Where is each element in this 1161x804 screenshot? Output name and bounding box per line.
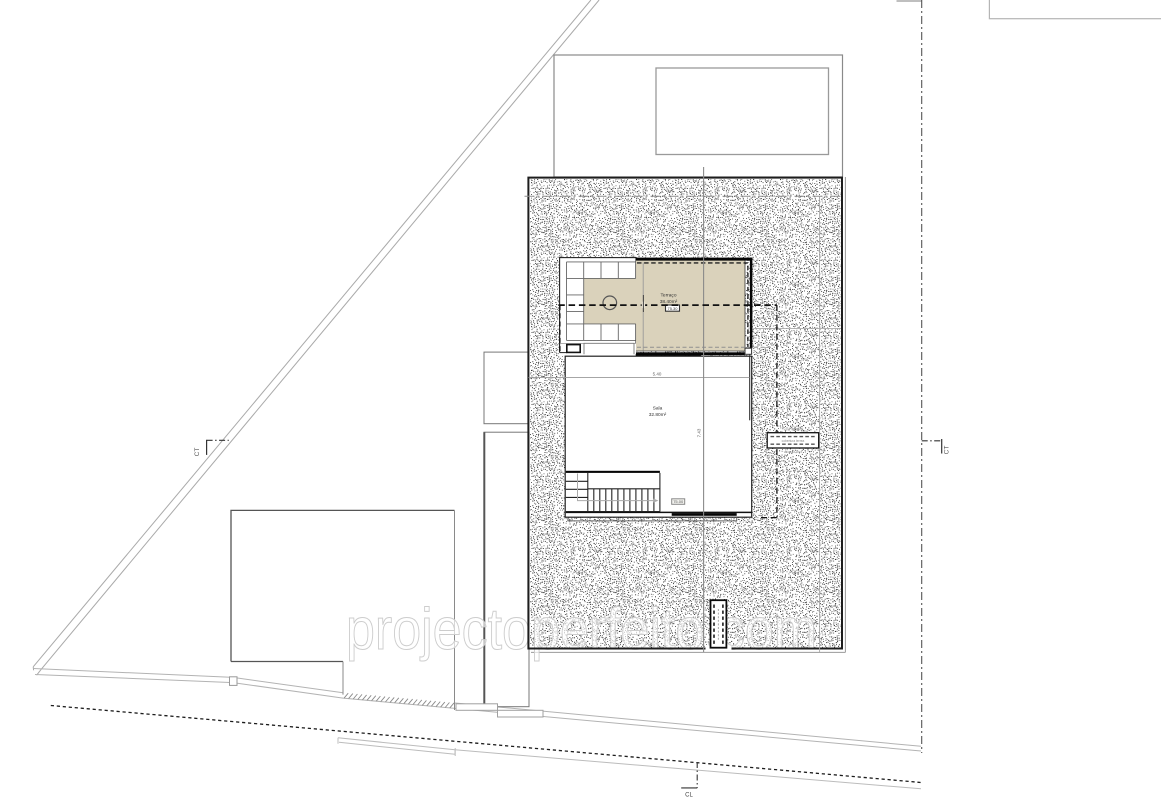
svg-text:Sala: Sala bbox=[653, 405, 663, 411]
svg-text:valor da obra: valor da obra bbox=[784, 428, 803, 432]
svg-text:cobertura terrea: cobertura terrea bbox=[782, 439, 805, 443]
svg-text:CL: CL bbox=[685, 793, 693, 799]
svg-text:75.00: 75.00 bbox=[673, 499, 684, 504]
svg-text:7.43: 7.43 bbox=[697, 428, 702, 437]
svg-text:valor da obra: valor da obra bbox=[784, 450, 803, 454]
svg-text:CT: CT bbox=[944, 446, 951, 455]
svg-text:32.80m²: 32.80m² bbox=[649, 412, 667, 418]
svg-text:5.40: 5.40 bbox=[653, 372, 662, 377]
svg-text:Terraço: Terraço bbox=[661, 293, 677, 299]
svg-text:75.30: 75.30 bbox=[667, 306, 678, 311]
svg-text:38.40m²: 38.40m² bbox=[660, 299, 678, 305]
svg-text:projectoperfeito.com: projectoperfeito.com bbox=[346, 597, 817, 662]
svg-text:CT: CT bbox=[194, 448, 201, 457]
